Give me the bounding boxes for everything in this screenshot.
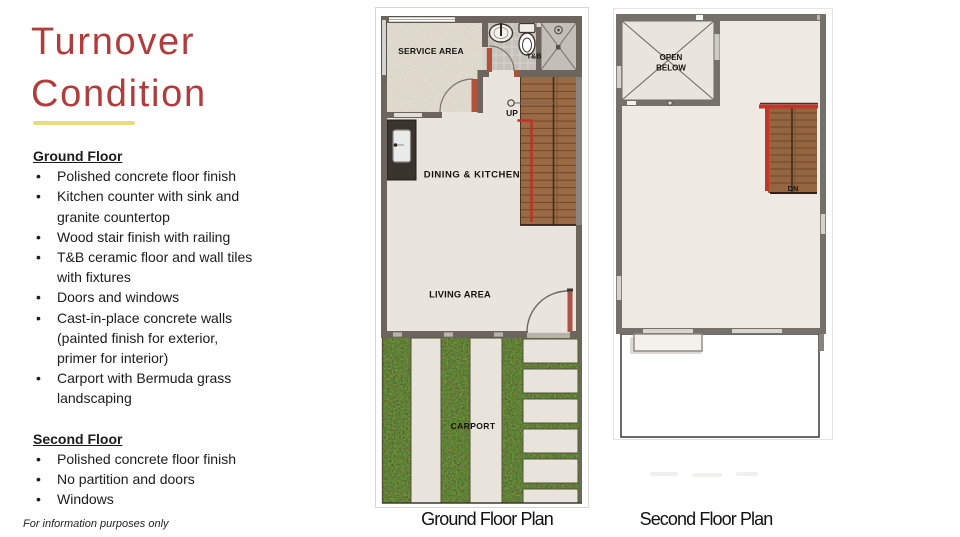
svg-text:DN: DN <box>788 184 799 193</box>
svg-text:T&B: T&B <box>527 52 542 61</box>
svg-text:LIVING AREA: LIVING AREA <box>429 290 491 300</box>
svg-text:SERVICE AREA: SERVICE AREA <box>398 46 464 56</box>
svg-text:CARPORT: CARPORT <box>451 421 496 431</box>
svg-text:UP: UP <box>506 108 518 118</box>
svg-text:BELOW: BELOW <box>656 64 686 73</box>
svg-text:OPEN: OPEN <box>660 53 683 62</box>
svg-text:DINING & KITCHEN: DINING & KITCHEN <box>424 170 520 181</box>
